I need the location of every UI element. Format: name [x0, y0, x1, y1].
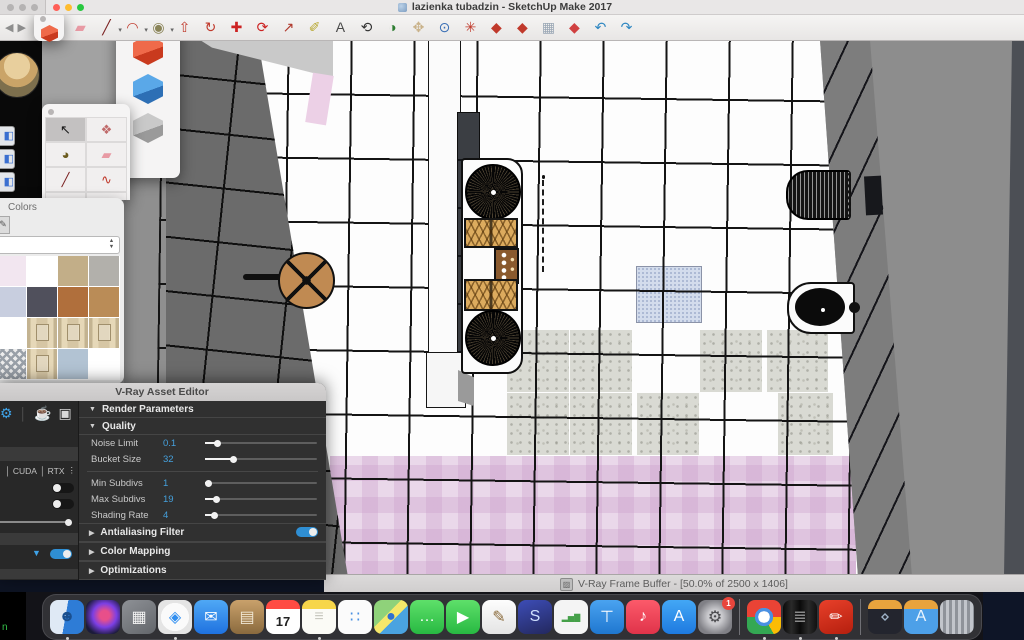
look-around-icon[interactable]: ◑ — [384, 20, 401, 34]
music-icon[interactable]: ♪ — [626, 600, 660, 634]
swatch-white[interactable] — [27, 256, 57, 286]
vray-left-band — [0, 447, 78, 461]
notification-badge: 1 — [722, 597, 735, 610]
window-title-row: lazienka tubadzin - SketchUp Make 2017 — [0, 1, 1024, 13]
redo-icon[interactable]: ↷ — [618, 20, 635, 34]
side-tool-icon-2[interactable]: ◧ — [0, 149, 15, 169]
eraser-icon[interactable]: ▰ — [72, 20, 89, 34]
siri-icon[interactable] — [86, 600, 120, 634]
facetime-icon[interactable]: ▶ — [446, 600, 480, 634]
device-tab-rtx[interactable]: │ RTX — [40, 466, 65, 476]
undo-icon[interactable]: ↶ — [592, 20, 609, 34]
pan-icon[interactable]: ✥ — [410, 20, 427, 34]
section-antialiasing-filter[interactable]: ▶Antialiasing Filter — [79, 523, 326, 542]
vray-titlebar[interactable]: V-Ray Asset Editor — [0, 383, 326, 401]
vray-toggle-3[interactable] — [50, 549, 72, 559]
orbit-icon[interactable]: ⟲ — [358, 20, 375, 34]
background-window-text: n — [2, 622, 8, 633]
swatch-white-2[interactable] — [0, 318, 26, 348]
status-bar: ▨ V-Ray Frame Buffer - [50.0% of 2500 x … — [324, 574, 1024, 593]
select-stepper[interactable]: ▲▼ — [106, 238, 117, 250]
app-store-icon[interactable]: A — [662, 600, 696, 634]
keynote-icon[interactable]: ⊤ — [590, 600, 624, 634]
dock-strip: n ☻▦◈✉▤17≡∷●…▶✎S▂▅▇⊤♪A⚙1≣✏⋄A — [0, 592, 1024, 640]
gpu-device-row: │ CUDA│ RTX⋮ — [0, 465, 78, 476]
terrazzo-tile[interactable] — [637, 393, 699, 455]
quality-header[interactable]: ▼Quality — [79, 418, 326, 435]
divider — [87, 471, 318, 472]
brush-icon[interactable]: ✎ — [0, 216, 10, 234]
main-toolbar: ◀▶ ▰╱▾◠▾◉▾⇧↻✚⟳↗✐A⟲◑✥⊙✳◆◆▦◆↶↷ — [0, 14, 1024, 41]
swatch-periwinkle[interactable] — [0, 287, 26, 317]
followme-icon[interactable]: ↻ — [202, 20, 219, 34]
background-app-strip: ◧◧◧ — [0, 40, 42, 200]
notes-icon[interactable]: ≡ — [302, 600, 336, 634]
pushpull-icon[interactable]: ⇧ — [176, 20, 193, 34]
line-tool-icon[interactable]: ╱▾ — [98, 20, 115, 34]
wicker-basket-top[interactable] — [464, 218, 518, 248]
param-label: Bucket Size — [79, 454, 163, 465]
side-tool-icon-3[interactable]: ◧ — [0, 172, 15, 192]
blue-box-icon[interactable] — [133, 74, 163, 104]
chevron-down-icon[interactable]: ▼ — [32, 548, 41, 558]
side-tool-icon-1[interactable]: ◧ — [0, 126, 15, 146]
tape-measure-icon[interactable]: ✐ — [306, 20, 323, 34]
vray-gpu-icon[interactable]: ◆ — [566, 20, 583, 34]
s-app-icon[interactable]: S — [518, 600, 552, 634]
back-icon[interactable]: ◀ — [5, 21, 13, 34]
swatch-camel[interactable] — [89, 287, 119, 317]
colors-panel-title: Colors — [8, 202, 37, 213]
nav-arrows: ◀▶ — [5, 21, 26, 34]
downloads-folder-icon[interactable]: ⋄ — [868, 600, 902, 634]
swatch-paper-roll-1[interactable] — [27, 318, 57, 348]
toilet-flush-knob[interactable] — [849, 302, 860, 313]
dark-utility-app-icon[interactable]: ≣ — [783, 600, 817, 634]
forward-icon[interactable]: ▶ — [17, 21, 25, 34]
freehand-icon[interactable]: ∿ — [86, 167, 127, 192]
swatch-charcoal[interactable] — [27, 287, 57, 317]
radiator[interactable] — [786, 170, 851, 220]
param-slider[interactable] — [205, 458, 317, 460]
make-component-icon[interactable]: ❖ — [86, 117, 127, 142]
render-parameters-header[interactable]: ▼Render Parameters — [79, 401, 326, 418]
gray-box-icon[interactable] — [133, 113, 163, 143]
terrazzo-tile[interactable] — [778, 393, 833, 455]
sink-basin-bottom[interactable] — [465, 310, 521, 366]
swatch-gray[interactable] — [89, 256, 119, 286]
red-box-icon — [41, 25, 58, 42]
device-tab-cuda[interactable]: │ CUDA — [5, 466, 37, 476]
dock-separator — [739, 599, 740, 635]
param-label: Min Subdivs — [79, 478, 163, 489]
section-optimizations[interactable]: ▶Optimizations — [79, 561, 326, 580]
vray-param-row: Bucket Size32 — [79, 451, 326, 467]
sketchup-icon[interactable]: ✏ — [819, 600, 853, 634]
section-color-mapping[interactable]: ▶Color Mapping — [79, 542, 326, 561]
collapsed-palette-window[interactable] — [34, 11, 64, 41]
param-label: Noise Limit — [79, 438, 163, 449]
param-value[interactable]: 32 — [163, 454, 205, 465]
scale-icon[interactable]: ↗ — [280, 20, 297, 34]
system-preferences-icon[interactable]: ⚙1 — [698, 600, 732, 634]
swatch-pattern-tile[interactable] — [0, 349, 26, 379]
vray-toggle-2[interactable] — [52, 499, 74, 509]
vray-buffer-icon[interactable]: ▦ — [540, 20, 557, 34]
param-value[interactable]: 0.1 — [163, 438, 205, 449]
line-icon[interactable]: ╱ — [45, 167, 86, 192]
param-value[interactable]: 19 — [163, 494, 205, 505]
param-value[interactable]: 4 — [163, 510, 205, 521]
toilet-seat[interactable] — [795, 288, 845, 326]
vray-left-column: ⚙│☕▣ │ CUDA│ RTX⋮ ▼ — [0, 401, 79, 580]
arc-tool-icon[interactable]: ◠▾ — [124, 20, 141, 34]
numbers-icon[interactable]: ▂▅▇ — [554, 600, 588, 634]
param-label: Max Subdivs — [79, 494, 163, 505]
rotate-icon[interactable]: ⟳ — [254, 20, 271, 34]
vray-toggle-1[interactable] — [52, 483, 74, 493]
maps-icon[interactable]: ● — [374, 600, 408, 634]
window-title: lazienka tubadzin - SketchUp Make 2017 — [412, 1, 612, 13]
vray-asset-editor: V-Ray Asset Editor ⚙│☕▣ │ CUDA│ RTX⋮ ▼ ▼… — [0, 383, 326, 580]
terrazzo-tile[interactable] — [700, 330, 762, 392]
vray-param-row: Max Subdivs19 — [79, 491, 326, 507]
colors-collection-select[interactable]: ▲▼ — [0, 236, 120, 254]
swatch-blue-gray[interactable] — [58, 349, 88, 379]
sink-basin-top[interactable] — [465, 164, 521, 220]
swatch-white-3[interactable] — [89, 349, 119, 379]
vfb-icon: ▨ — [560, 578, 573, 591]
vray-left-band — [0, 533, 78, 545]
paint-bucket-icon[interactable]: ◕ — [45, 142, 86, 167]
vray-param-row: Min Subdivs1 — [79, 475, 326, 491]
zoom-icon[interactable]: ⊙ — [436, 20, 453, 34]
vanity-counter[interactable] — [461, 158, 523, 374]
mail-icon[interactable]: ✉ — [194, 600, 228, 634]
param-value[interactable]: 1 — [163, 478, 205, 489]
dropdown-arrow-icon[interactable]: ▾ — [170, 27, 174, 34]
trash-icon[interactable] — [940, 600, 974, 634]
reminders-icon[interactable]: ∷ — [338, 600, 372, 634]
window-titlebar: lazienka tubadzin - SketchUp Make 2017 — [0, 0, 1024, 15]
wall-mounted-panel[interactable] — [864, 176, 883, 216]
swatch-paper-roll-4[interactable] — [27, 349, 57, 379]
swatch-pale-pink[interactable] — [0, 256, 26, 286]
launchpad-icon[interactable]: ▦ — [122, 600, 156, 634]
pink-tile-floor[interactable] — [330, 456, 856, 577]
terrazzo-tile[interactable] — [507, 393, 569, 455]
applications-folder-icon[interactable]: A — [904, 600, 938, 634]
status-text: V-Ray Frame Buffer - [50.0% of 2500 x 14… — [578, 578, 788, 590]
wood-stool[interactable] — [278, 252, 335, 309]
terrazzo-tile[interactable] — [570, 330, 632, 392]
document-icon — [398, 3, 407, 12]
vray-render-parameters: ▼Render Parameters ▼Quality Noise Limit0… — [79, 401, 326, 580]
terrazzo-tile[interactable] — [767, 330, 828, 392]
guide-dashed-line[interactable] — [542, 180, 544, 272]
textedit-icon[interactable]: ✎ — [482, 600, 516, 634]
select-tool-icon[interactable]: ↖ — [45, 117, 86, 142]
finder-icon[interactable]: ☻ — [50, 600, 84, 634]
swatch-grid — [0, 256, 120, 380]
messages-icon[interactable]: … — [410, 600, 444, 634]
vray-left-slider[interactable] — [0, 521, 70, 523]
wicker-basket-bottom[interactable] — [464, 279, 518, 311]
vray-render-icon[interactable]: ◆ — [488, 20, 505, 34]
vray-left-band — [0, 569, 78, 579]
dropdown-arrow-icon[interactable]: ▾ — [144, 27, 148, 34]
divider: │ — [20, 407, 28, 421]
toolbar-icons: ▰╱▾◠▾◉▾⇧↻✚⟳↗✐A⟲◑✥⊙✳◆◆▦◆↶↷ — [72, 20, 635, 34]
param-label: Shading Rate — [79, 510, 163, 521]
circle-tool-icon[interactable]: ◉▾ — [150, 20, 167, 34]
dock: ☻▦◈✉▤17≡∷●…▶✎S▂▅▇⊤♪A⚙1≣✏⋄A — [42, 594, 982, 640]
swatch-tan[interactable] — [58, 256, 88, 286]
settings-icon[interactable]: ⚙ — [0, 405, 13, 422]
render-teapot-icon[interactable]: ☕ — [34, 405, 51, 422]
swatch-paper-roll-2[interactable] — [58, 318, 88, 348]
avatar — [0, 52, 40, 98]
calendar-icon[interactable]: 17 — [266, 600, 300, 634]
dock-separator — [860, 599, 861, 635]
dropdown-arrow-icon[interactable]: ▾ — [118, 27, 122, 34]
param-slider[interactable] — [205, 442, 317, 444]
vray-param-row: Noise Limit0.1 — [79, 435, 326, 451]
frame-buffer-icon[interactable]: ▣ — [59, 405, 72, 422]
param-slider[interactable] — [205, 482, 317, 484]
safari-icon[interactable]: ◈ — [158, 600, 192, 634]
desktop: lazienka tubadzin - SketchUp Make 2017 ◀… — [0, 0, 1024, 640]
blue-mosaic-tile[interactable] — [636, 266, 702, 323]
param-slider[interactable] — [205, 514, 317, 516]
vray-param-row: Shading Rate4 — [79, 507, 326, 523]
move-icon[interactable]: ✚ — [228, 20, 245, 34]
vray-interactive-icon[interactable]: ◆ — [514, 20, 531, 34]
swatch-paper-roll-3[interactable] — [89, 318, 119, 348]
param-slider[interactable] — [205, 498, 317, 500]
swatch-wood[interactable] — [58, 287, 88, 317]
terrazzo-tile[interactable] — [570, 393, 632, 455]
vray-title: V-Ray Asset Editor — [0, 383, 326, 401]
text-tool-icon[interactable]: A — [332, 20, 349, 34]
section-toggle[interactable] — [296, 527, 318, 537]
zoom-extents-icon[interactable]: ✳ — [462, 20, 479, 34]
contacts-icon[interactable]: ▤ — [230, 600, 264, 634]
toilet[interactable] — [787, 282, 855, 334]
tool-palette-window: ↖❖◕▰╱∿▭▱ — [42, 104, 130, 200]
colors-panel: Colors ✎ ▲▼ — [0, 198, 124, 384]
chrome-icon[interactable] — [747, 600, 781, 634]
eraser-tool-icon[interactable]: ▰ — [86, 142, 127, 167]
more-options-icon[interactable]: ⋮ — [68, 465, 77, 476]
